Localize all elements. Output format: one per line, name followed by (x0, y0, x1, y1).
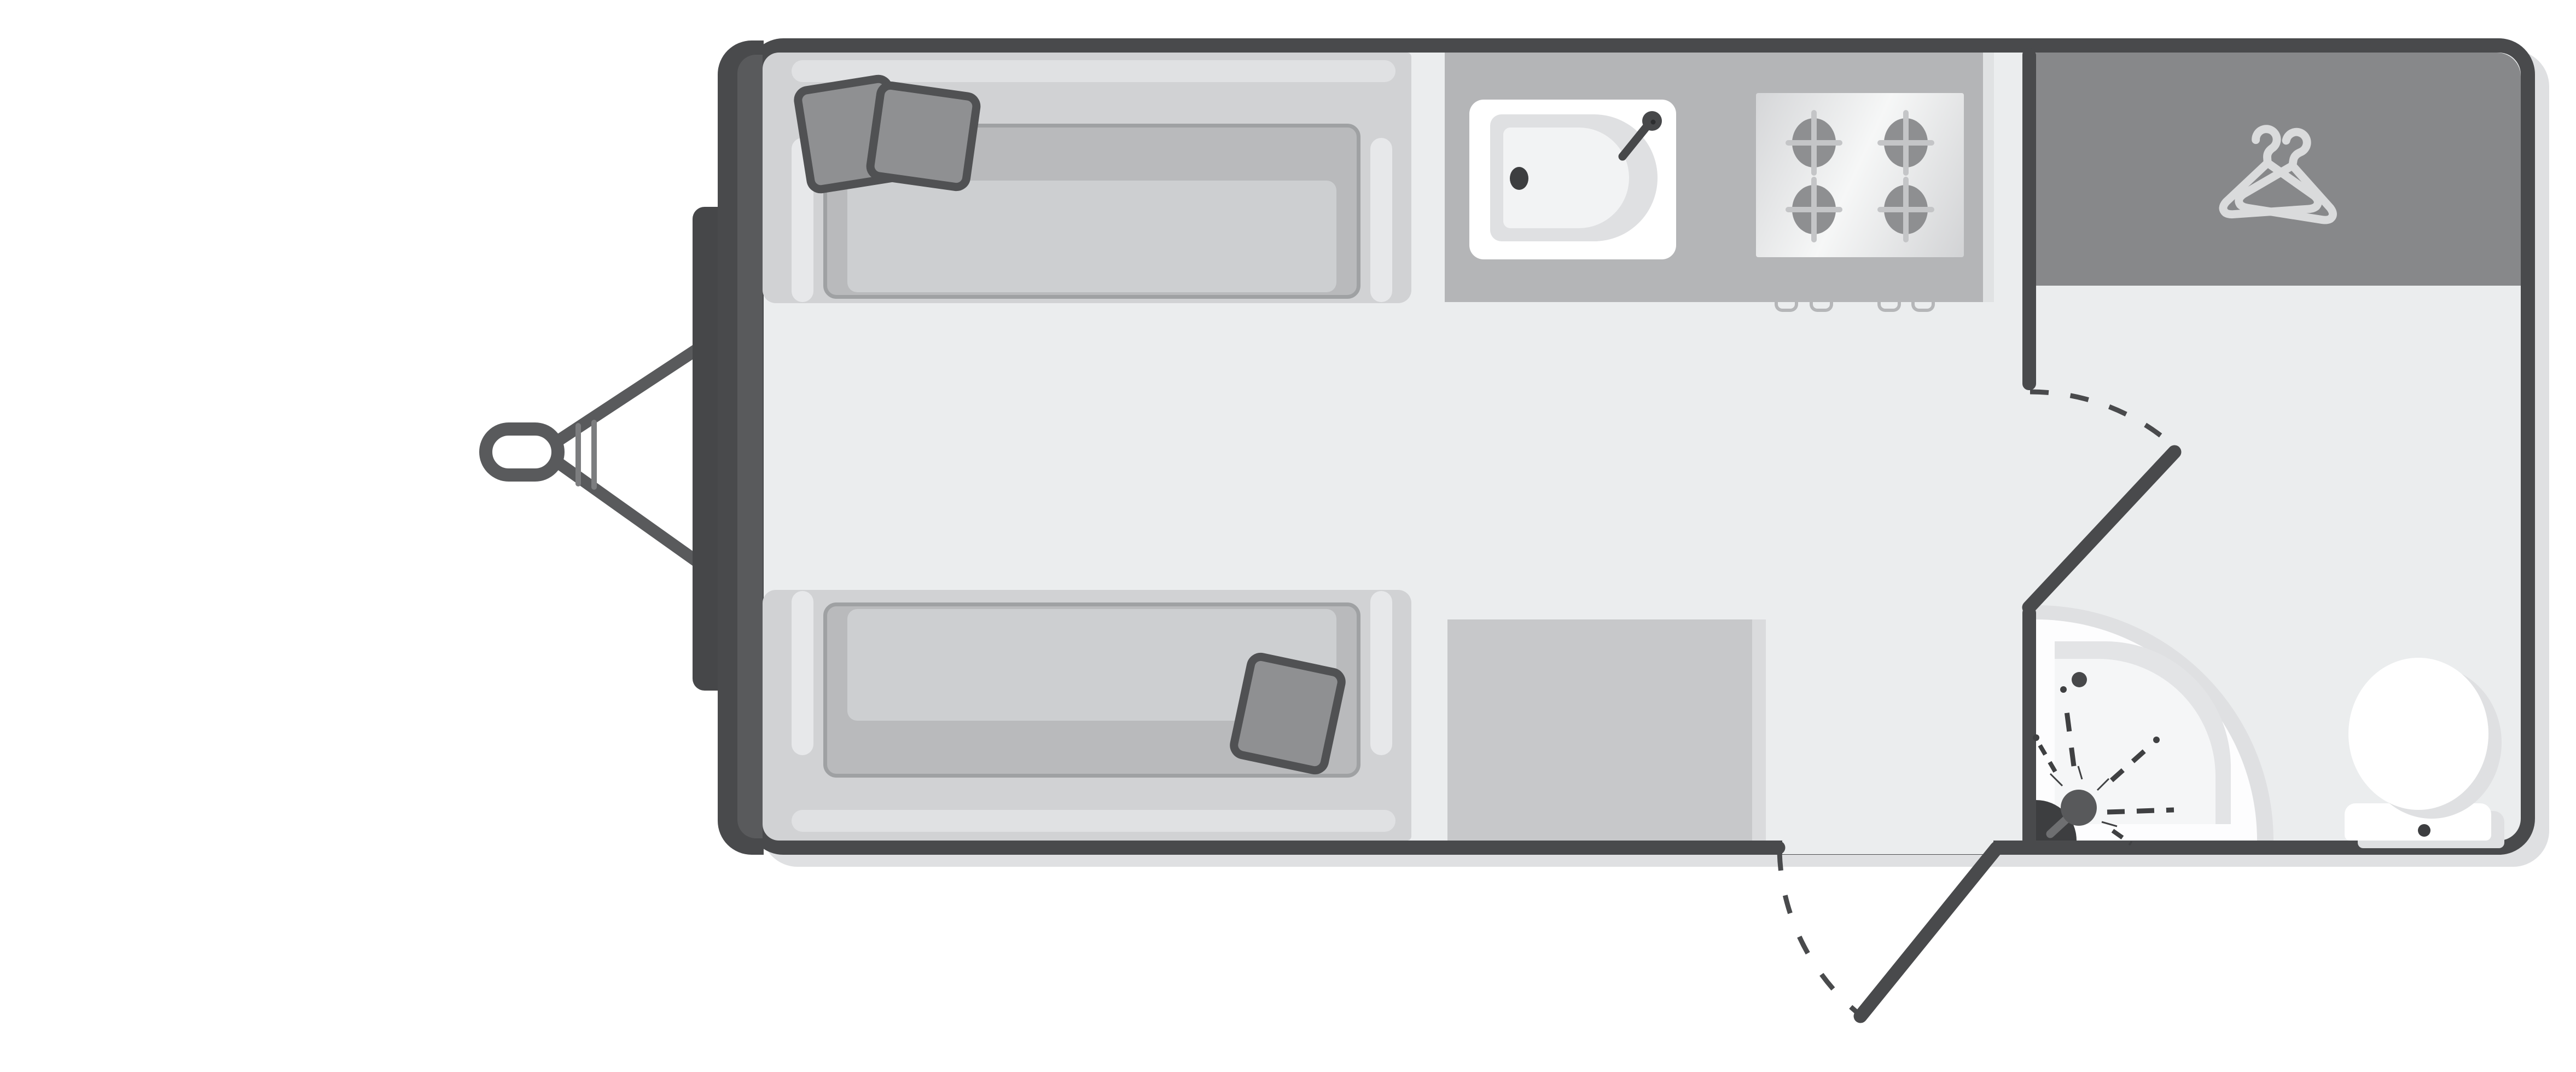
walls-doors-layer (0, 0, 2576, 1072)
shower-head-icon (2061, 790, 2097, 826)
caravan-floorplan (0, 0, 2576, 1072)
washroom-door-leaf (2029, 452, 2174, 607)
tap-dot (1651, 120, 1656, 125)
washroom-wall-upper (2022, 48, 2036, 390)
washroom-wall-lower (2022, 606, 2036, 853)
door-swing-arc-icon (1780, 852, 1864, 1018)
entry-door-leaf (1860, 849, 1996, 1016)
tap-handle (1623, 128, 1645, 157)
door-swing-arc-icon (2030, 392, 2178, 450)
entry-doorway (1782, 838, 1993, 854)
